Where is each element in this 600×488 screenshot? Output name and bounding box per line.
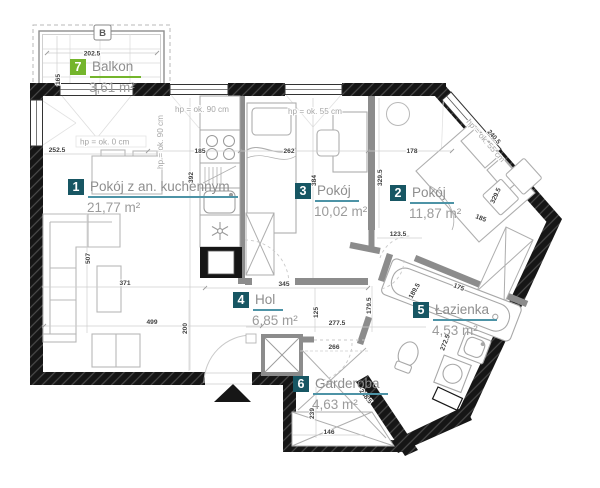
dim-hol-width: 345 (278, 281, 289, 288)
room-number-badge: 3 (295, 183, 311, 199)
room-area: 4,63 m² (312, 398, 388, 412)
dim-gard-width: 146 (323, 429, 334, 436)
b-marker-label: B (99, 28, 106, 39)
room-label-bathroom: 5 Łazienka 4,53 m² (413, 302, 497, 337)
hp-balcony-door: hp = ok. 0 cm (80, 138, 130, 147)
dim-living-200: 200 (182, 323, 189, 334)
room-number-badge: 4 (233, 292, 249, 308)
coffee-table (97, 266, 121, 312)
dim-balcony-width: 202.5 (84, 51, 101, 58)
room-label-living: 1 Pokój z an. kuchennym 21,77 m² (68, 179, 238, 214)
room-number-badge: 2 (390, 185, 406, 201)
room-area: 3,61 m² (89, 81, 141, 95)
entrance-threshold (205, 373, 252, 384)
room-name: Łazienka (433, 302, 497, 321)
room-area: 10,02 m² (314, 205, 367, 219)
room-area: 6,85 m² (252, 314, 298, 328)
washing-machine (434, 355, 471, 392)
room-name: Pokój (410, 185, 454, 204)
dim-living-371: 371 (119, 280, 130, 287)
room-number-badge: 7 (70, 59, 86, 75)
dim-living-499: 499 (146, 319, 157, 326)
room-area: 21,77 m² (87, 201, 238, 215)
room-number-badge: 1 (68, 179, 84, 195)
room-label-bedroom2: 2 Pokój 11,87 m² (390, 185, 461, 220)
desk-room3 (317, 112, 367, 172)
room-name: Garderoba (313, 376, 388, 395)
room-area: 4,53 m² (432, 324, 497, 338)
hp-window-room3: hp = ok. 55 cm (288, 107, 342, 116)
room-label-bedroom3: 3 Pokój 10,02 m² (295, 183, 367, 218)
room-label-closet: 6 Garderoba 4,63 m² (293, 376, 388, 411)
dim-hol-179: 179.5 (366, 297, 373, 314)
room-name: Balkon (90, 59, 141, 78)
dim-room2-width: 178 (406, 148, 417, 155)
dim-room2-depth: 329.5 (377, 169, 384, 186)
dim-kitchen-width: 185 (194, 148, 205, 155)
kitchen-shaft (200, 247, 242, 278)
room-name: Hol (253, 292, 283, 311)
sideboard (92, 334, 140, 367)
room-label-balcony: 7 Balkon 3,61 m² (70, 59, 141, 94)
b-marker: B (94, 25, 111, 40)
floor-plan: B (0, 0, 600, 488)
room-number-badge: 5 (413, 302, 429, 318)
dim-hol-277: 277.5 (329, 320, 346, 327)
hp-window-kitchen: hp = ok. 90 cm (175, 105, 229, 114)
room-label-hall: 4 Hol 6,85 m² (233, 292, 298, 327)
dim-hol-266: 266 (328, 344, 339, 351)
toilet (393, 339, 422, 374)
shaft-x (265, 338, 299, 372)
wardrobe-room3 (246, 213, 274, 275)
plant-room2 (387, 103, 410, 126)
room-name: Pokój z an. kuchennym (88, 179, 238, 198)
dim-hol-125: 125 (313, 307, 320, 318)
room-area: 11,87 m² (409, 207, 461, 221)
dim-balcony-door: 252.5 (49, 147, 66, 154)
dim-pass-width: 123.5 (390, 231, 407, 238)
dim-balcony-depth: 165 (55, 74, 62, 85)
window-left (31, 100, 77, 146)
dim-sofa-length: 507 (85, 253, 92, 264)
room-number-badge: 6 (293, 376, 309, 392)
dim-room3-width: 262 (283, 148, 294, 155)
hp-window-left: hp = ok. 90 cm (156, 115, 165, 169)
room-name: Pokój (315, 183, 359, 202)
entrance-arrow (214, 384, 251, 402)
